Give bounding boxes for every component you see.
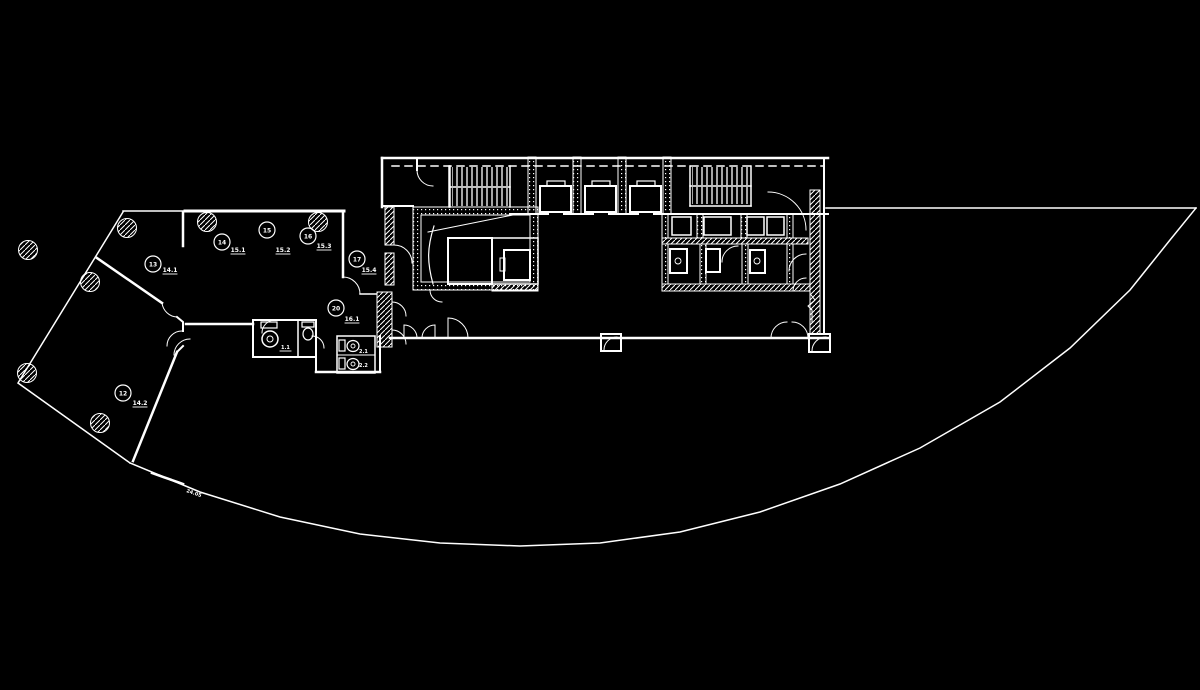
tag-number: 15 (263, 228, 271, 235)
tag-area: 16.1 (345, 316, 360, 323)
room-tag: 20 16.1 (328, 300, 359, 323)
floor-plan: 24.05 (0, 0, 1200, 690)
tag-area: 14.1 (163, 267, 178, 274)
tag-area: 15.4 (362, 267, 377, 274)
tag-number: 17 (353, 257, 361, 264)
door-arc (394, 245, 412, 263)
tag-area: 15.2 (276, 247, 291, 254)
room-tags: 13 14.1 14 15.1 15 15.2 16 15.3 17 15.4 (115, 222, 376, 407)
elevator-car (540, 181, 571, 212)
door-arc (404, 325, 417, 338)
east-wall (768, 158, 824, 334)
column-icon (18, 364, 37, 383)
column-icon (198, 213, 217, 232)
tag-area: 15.1 (231, 247, 246, 254)
shaft-wall (528, 157, 536, 214)
fixture-label: 2.2 (359, 363, 368, 369)
room-tag: 17 15.4 (349, 251, 376, 274)
door-arc (417, 170, 433, 186)
door-arc (448, 318, 468, 338)
curve-dimension-marks (152, 473, 183, 484)
door-arc (343, 277, 360, 294)
elevator-car (504, 250, 530, 280)
tag-number: 12 (119, 391, 127, 398)
room-tag: 15 15.2 (259, 222, 290, 254)
hatched-wall (662, 284, 810, 291)
elevator-car (630, 181, 661, 212)
stair-core (413, 207, 538, 302)
toilet (339, 358, 359, 370)
column-base (601, 334, 621, 351)
tag-number: 13 (149, 262, 157, 269)
main-building (377, 157, 830, 352)
south-wall (390, 295, 830, 352)
hatched-wall (662, 238, 808, 244)
tag-number: 14 (218, 240, 226, 247)
closet (767, 217, 784, 235)
toilet (261, 322, 278, 347)
tag-number: 20 (332, 306, 340, 313)
door-arc (312, 336, 324, 348)
room-tag: 12 14.2 (115, 385, 147, 407)
elevator-car (585, 181, 616, 212)
stair-right (690, 166, 751, 206)
tag-area: 15.3 (317, 243, 332, 250)
room-tag: 14 15.1 (214, 234, 245, 254)
wc-block: 1.1 2.1 2.2 (174, 320, 380, 373)
site-boundary: 24.05 (18, 208, 1196, 546)
column-icon (19, 241, 38, 260)
column-base (809, 334, 830, 352)
core-room (448, 238, 492, 284)
toilet (750, 250, 765, 273)
west-wall-hatched (385, 207, 394, 245)
tag-number: 16 (304, 234, 312, 241)
room-tag: 13 14.1 (145, 256, 177, 274)
toilet (302, 322, 314, 340)
door-arc (722, 246, 738, 262)
door-arc (162, 303, 177, 317)
east-rooms (662, 214, 810, 291)
stair-left (450, 166, 510, 207)
door-arc (792, 322, 808, 338)
door-arc (392, 302, 406, 316)
door-arc (430, 290, 442, 302)
closet (672, 217, 691, 235)
door-arc (771, 322, 787, 338)
column-icon (91, 414, 110, 433)
elevator-bank (510, 157, 828, 214)
door-arc (167, 331, 182, 346)
door-arc (422, 325, 435, 338)
tag-area: 14.2 (133, 400, 148, 407)
closet (704, 217, 731, 235)
ramp-curve (429, 226, 434, 284)
toilet (670, 249, 687, 273)
fixture-label: 1.1 (281, 345, 290, 351)
curve-annotation: 24.05 (185, 488, 202, 499)
column-icon (81, 273, 100, 292)
fixture-label: 2.1 (359, 349, 368, 355)
under-stair-line (428, 215, 513, 232)
column-icon (118, 219, 137, 238)
columns (18, 213, 328, 433)
closet (747, 217, 764, 235)
toilet (339, 340, 359, 352)
fixture (706, 249, 720, 272)
